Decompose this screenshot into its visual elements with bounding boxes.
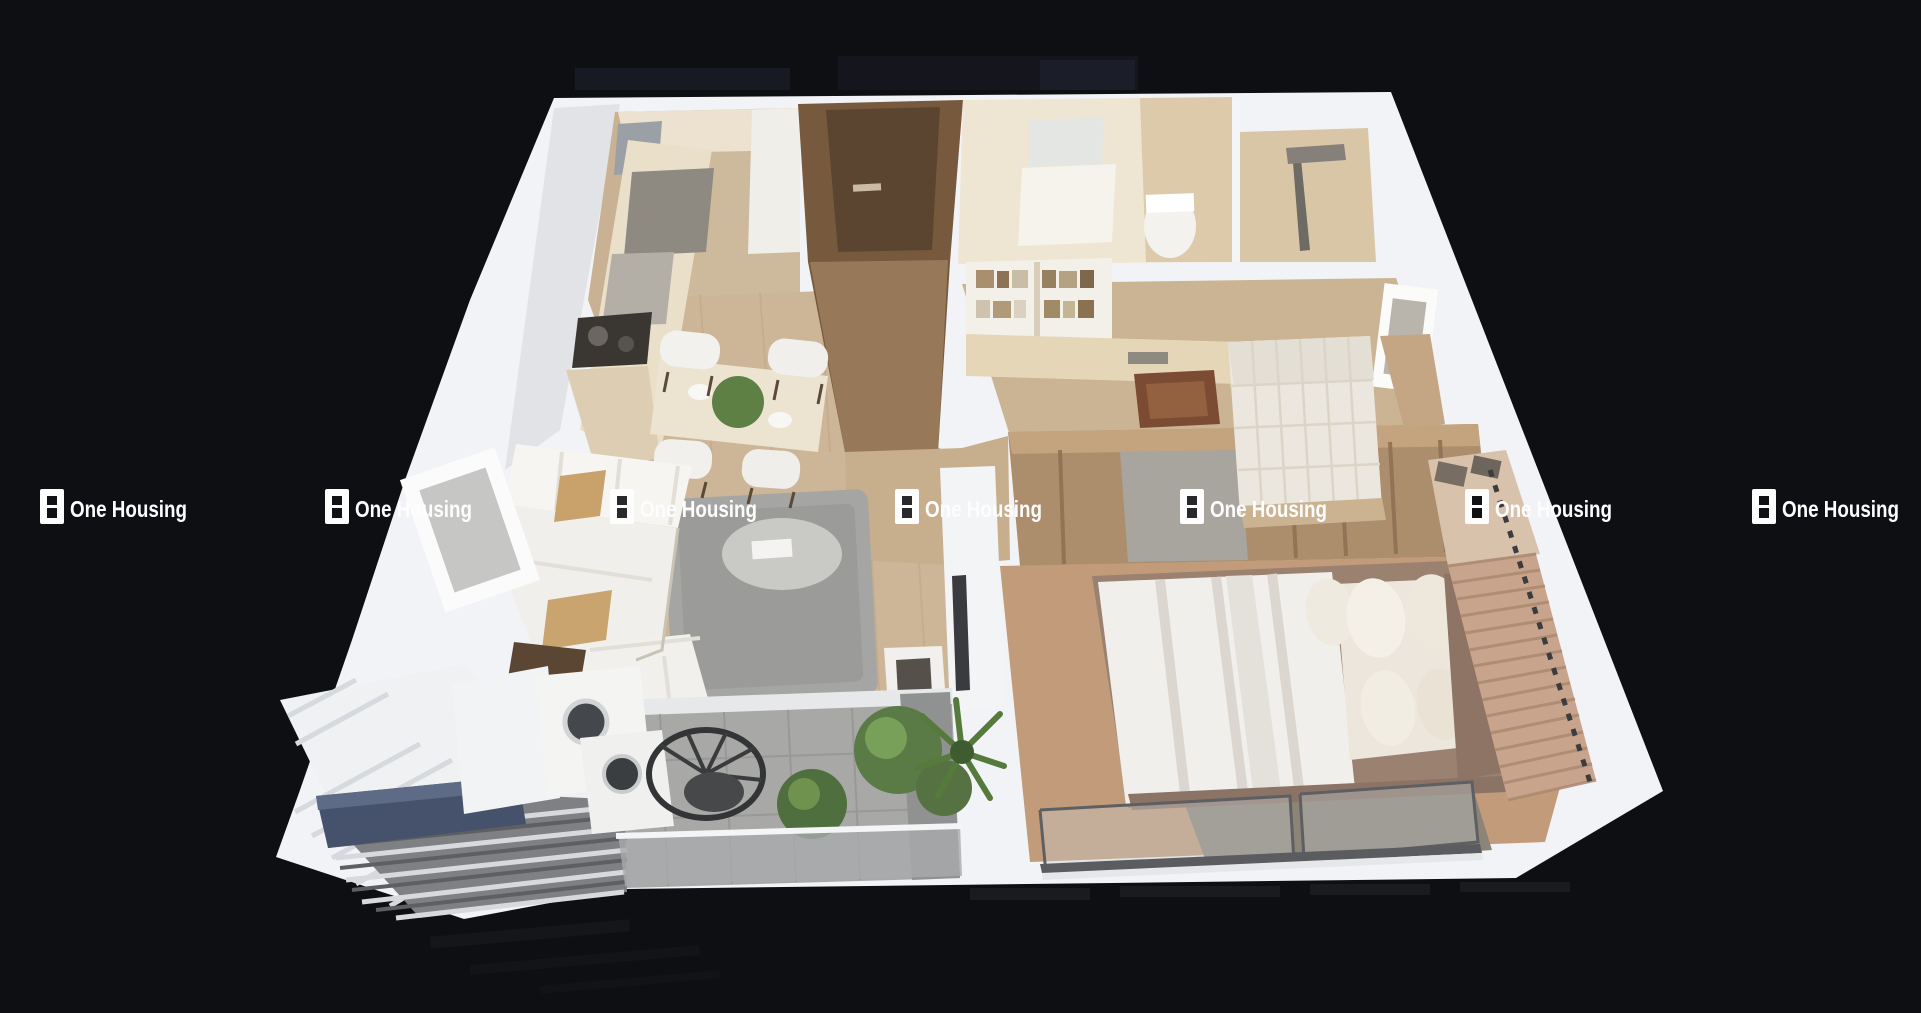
svg-text:One Housing: One Housing: [1782, 496, 1899, 522]
svg-text:One Housing: One Housing: [1210, 496, 1327, 522]
svg-text:One Housing: One Housing: [1495, 496, 1612, 522]
svg-text:One Housing: One Housing: [70, 496, 187, 522]
svg-text:One Housing: One Housing: [355, 496, 472, 522]
svg-text:One Housing: One Housing: [925, 496, 1042, 522]
svg-text:One Housing: One Housing: [640, 496, 757, 522]
